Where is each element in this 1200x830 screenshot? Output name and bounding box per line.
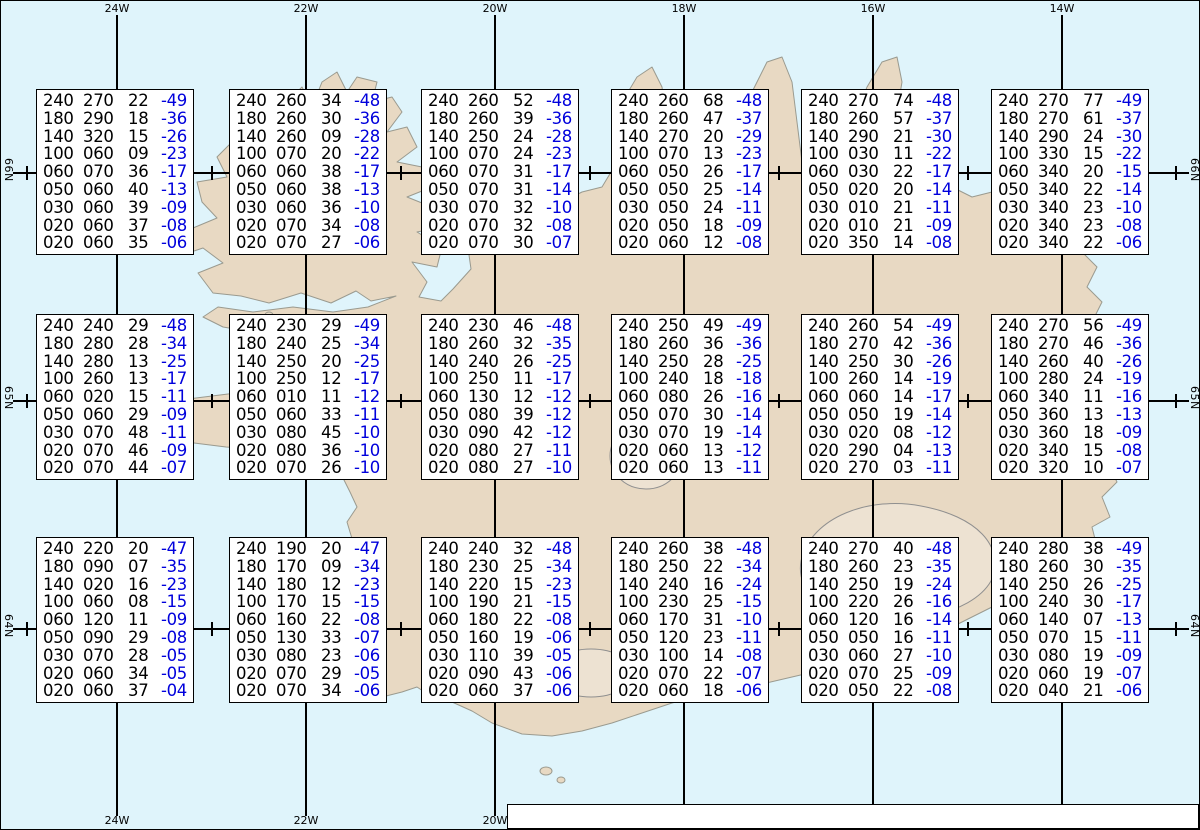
longitude-label-top: 18W xyxy=(672,2,697,15)
latitude-label-right: 65N xyxy=(1188,386,1200,410)
longitude-label-top: 24W xyxy=(105,2,130,15)
longitude-label-top: 16W xyxy=(861,2,886,15)
longitude-label-bottom: 22W xyxy=(294,814,319,827)
longitude-label-top: 22W xyxy=(294,2,319,15)
spot-chart-canvas: 24027022-4918029018-3614032015-261000600… xyxy=(0,0,1200,830)
latitude-label-right: 66N xyxy=(1188,158,1200,182)
longitude-label-top: 20W xyxy=(483,2,508,15)
graticule-label-layer: 24W24W22W22W20W20W18W16W14W66N66N65N65N6… xyxy=(1,1,1199,829)
longitude-label-bottom: 20W xyxy=(483,814,508,827)
status-bar: Spot Chart: FL Dir KT °C UWC/IG-IS: IT: … xyxy=(507,804,1199,829)
latitude-label-left: 65N xyxy=(2,386,15,410)
latitude-label-right: 64N xyxy=(1188,614,1200,638)
longitude-label-top: 14W xyxy=(1050,2,1075,15)
latitude-label-left: 66N xyxy=(2,158,15,182)
longitude-label-bottom: 24W xyxy=(105,814,130,827)
latitude-label-left: 64N xyxy=(2,614,15,638)
